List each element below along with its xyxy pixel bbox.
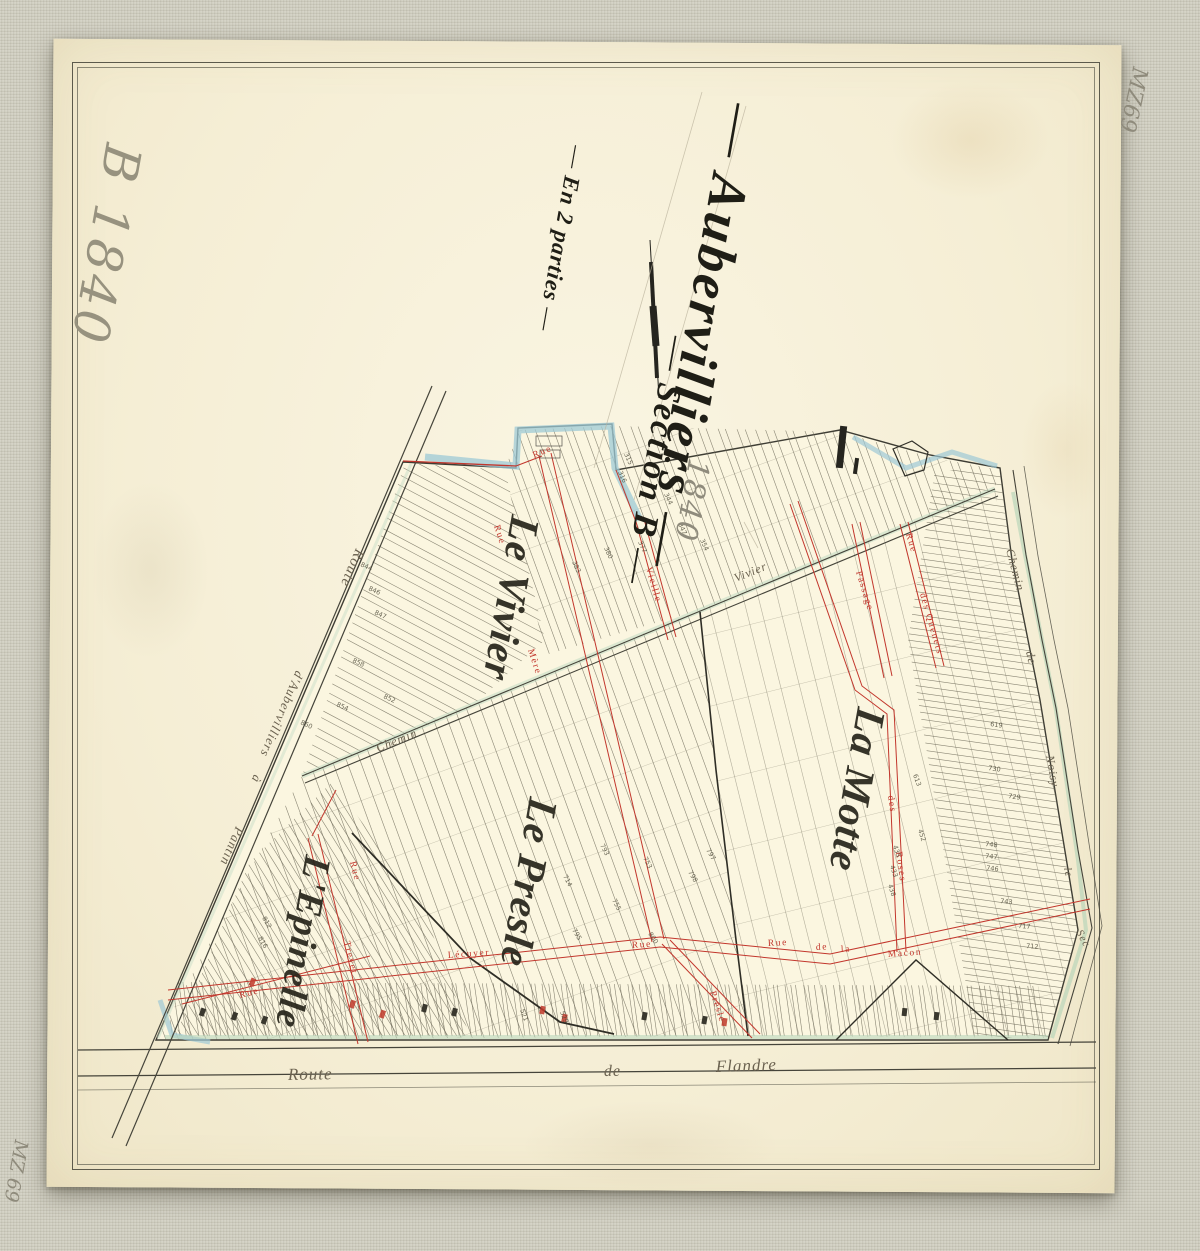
road-name-label: le [1061,866,1075,878]
parcel-number: 717 [1018,922,1031,931]
road-name-label: de [1023,650,1039,666]
archival-map-sheet: { "archive": { "shelfmark": "B 1840", "c… [0,0,1200,1251]
parcel-number: 315 [622,452,634,467]
road-name-label: de [604,1063,621,1080]
parcel-number: 730 [988,764,1001,774]
street-name-label: de [816,942,829,953]
street-name-label: Rue [632,940,653,951]
cadastral-map-canvas: Le VivierLe PresleLa MotteL'EpinelleRout… [0,0,1200,1251]
parcel-number: 619 [990,720,1003,730]
road-name-label: Flandre [714,1055,777,1076]
parcel-number: 746 [986,864,999,873]
flourish-dash: — [616,545,661,588]
flourish-dash: — [533,306,562,334]
parcel-number: 712 [1026,942,1039,951]
road-name-label: à [248,773,265,786]
road-name-label: Route [287,1064,333,1084]
flourish-dash: — [653,333,698,376]
parcel-number: 729 [1008,792,1021,802]
street-name-label: la [841,944,852,955]
flourish-dash: — [561,144,590,172]
parcel-number: 743 [1000,897,1013,906]
parcel-number: 747 [985,852,998,861]
flourish-dash: — [704,99,773,166]
parcel-number: 748 [985,840,998,849]
road-name-label: Sec [1073,928,1092,950]
street-name-label: Rue [768,938,789,949]
